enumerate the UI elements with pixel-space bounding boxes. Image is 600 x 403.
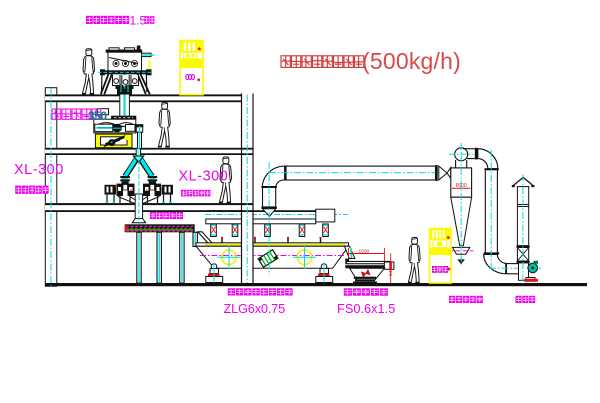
svg-text:XL-300: XL-300	[14, 162, 64, 178]
svg-text:1.5: 1.5	[130, 14, 147, 28]
svg-text:(500kg/h): (500kg/h)	[362, 48, 461, 74]
svg-text:ZLG6x0.75: ZLG6x0.75	[224, 301, 286, 316]
svg-text:FS0.6x1.5: FS0.6x1.5	[337, 301, 395, 316]
svg-text:545: 545	[388, 268, 394, 276]
svg-text:XL-300: XL-300	[179, 169, 229, 185]
svg-text:350: 350	[88, 109, 107, 123]
